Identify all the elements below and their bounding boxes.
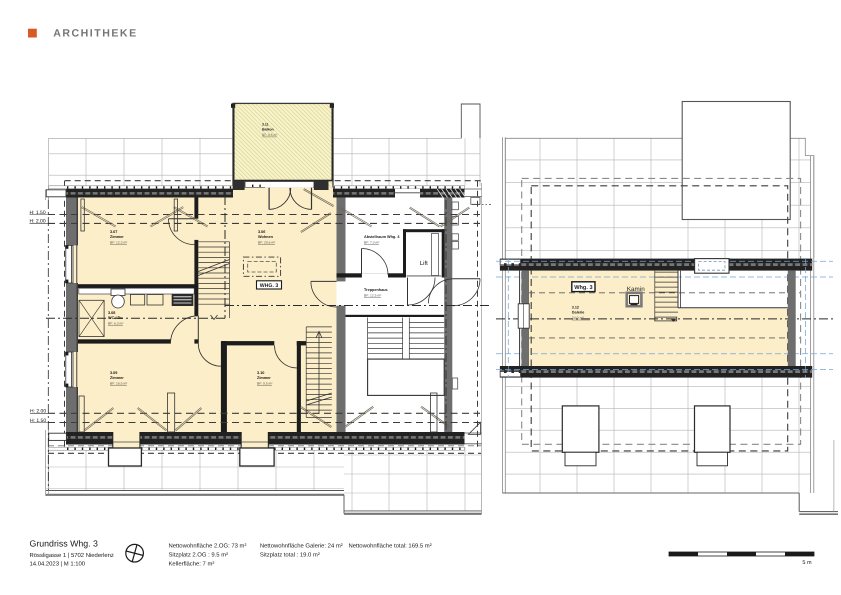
svg-text:Galerie: Galerie [572, 311, 585, 315]
svg-text:BF: 9.5 m²: BF: 9.5 m² [257, 382, 273, 386]
svg-text:3.06: 3.06 [258, 230, 265, 234]
svg-text:BF: 12.5 m²: BF: 12.5 m² [364, 294, 382, 298]
svg-text:Zimmer: Zimmer [110, 235, 124, 239]
svg-text:H: 2.00: H: 2.00 [30, 409, 46, 415]
svg-text:Nettowohnfläche 2.OG: 73 m²: Nettowohnfläche 2.OG: 73 m² [169, 542, 247, 549]
svg-text:Wohnen: Wohnen [258, 235, 274, 239]
svg-text:H: 1.50: H: 1.50 [30, 210, 46, 216]
svg-text:Lift: Lift [420, 260, 428, 267]
svg-text:Zimmer: Zimmer [257, 376, 271, 380]
svg-text:BF: 6.3 m²: BF: 6.3 m² [108, 322, 124, 326]
svg-text:H: 2.00: H: 2.00 [30, 219, 46, 225]
svg-text:Abstellraum Whg. 4: Abstellraum Whg. 4 [364, 235, 400, 239]
svg-text:Treppenhaus: Treppenhaus [364, 288, 388, 292]
svg-text:3.11: 3.11 [262, 123, 269, 127]
svg-text:3.10: 3.10 [257, 371, 264, 375]
svg-text:BF: 16.5 m²: BF: 16.5 m² [110, 382, 128, 386]
svg-text:BF: 28.6 m²: BF: 28.6 m² [258, 241, 276, 245]
svg-text:3.08: 3.08 [108, 311, 115, 315]
svg-text:BF: 9.5 m²: BF: 9.5 m² [262, 133, 278, 137]
svg-text:Zimmer: Zimmer [110, 376, 124, 380]
svg-text:ARCHITHEKE: ARCHITHEKE [53, 28, 137, 40]
svg-text:Whg. 3: Whg. 3 [574, 284, 592, 291]
svg-text:Kamin: Kamin [627, 286, 645, 293]
svg-text:Grundriss Whg. 3: Grundriss Whg. 3 [30, 539, 99, 549]
svg-text:Kellerfläche: 7 m²: Kellerfläche: 7 m² [169, 560, 215, 567]
svg-text:Sitzplatz total : 19.0 m²: Sitzplatz total : 19.0 m² [260, 552, 320, 559]
svg-text:3.07: 3.07 [110, 230, 117, 234]
svg-text:Rössligasse 1 | 5702 Niederlen: Rössligasse 1 | 5702 Niederlenz [30, 552, 114, 559]
svg-text:Nettowohnfläche total: 169.5 m: Nettowohnfläche total: 169.5 m² [349, 542, 432, 549]
svg-text:Nettowohnfläche Galerie: 24 m²: Nettowohnfläche Galerie: 24 m² [260, 542, 343, 549]
svg-text:3.09: 3.09 [110, 371, 117, 375]
svg-text:5 m: 5 m [802, 560, 812, 566]
svg-text:24,0 m²: 24,0 m² [572, 316, 585, 320]
svg-text:Balkon: Balkon [262, 128, 274, 132]
svg-text:WC / Du: WC / Du [108, 316, 123, 320]
svg-text:14.04.2023 | M 1:100: 14.04.2023 | M 1:100 [30, 561, 86, 568]
svg-text:Sitzplatz 2.OG : 9.5 m²: Sitzplatz 2.OG : 9.5 m² [169, 552, 229, 559]
svg-text:H: 1.50: H: 1.50 [30, 418, 46, 424]
svg-text:WHG. 3: WHG. 3 [260, 283, 279, 289]
svg-text:BF: 7.0 m²: BF: 7.0 m² [364, 241, 380, 245]
svg-text:BF: 12.3 m²: BF: 12.3 m² [110, 241, 128, 245]
svg-text:3.12: 3.12 [572, 306, 579, 310]
